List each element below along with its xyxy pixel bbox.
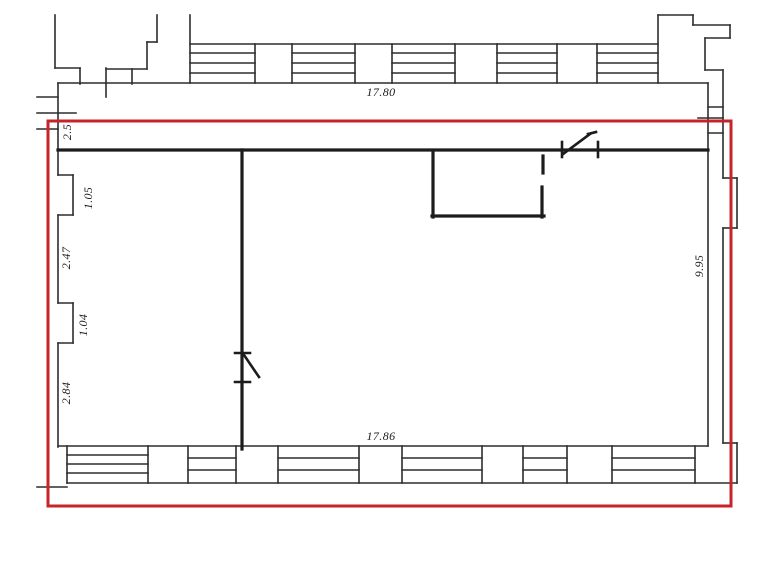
interior-walls xyxy=(58,150,708,449)
dim-height-right: 9.95 xyxy=(692,255,706,278)
door-swing-top-wall-segment xyxy=(588,132,596,134)
dim-left-mid: 2.47 xyxy=(59,246,73,269)
door-swing-partition xyxy=(235,353,259,382)
floor-plan-drawing: 17.8017.869.952.51.052.471.042.84 xyxy=(0,0,781,577)
bottom-window-band xyxy=(37,446,737,487)
exterior-walls xyxy=(58,83,708,447)
dim-left-lower: 2.84 xyxy=(59,382,73,405)
dim-width-bottom: 17.86 xyxy=(367,429,396,443)
top-window-band xyxy=(190,44,658,83)
dim-left-pier2: 1.04 xyxy=(76,314,90,337)
door-swing-partition-segment xyxy=(244,355,259,377)
floor-plan-page: 17.8017.869.952.51.052.471.042.84 xyxy=(0,0,781,577)
facade-top-left-outline xyxy=(55,15,190,97)
door-swing-top-wall xyxy=(562,132,598,157)
dim-width-top: 17.80 xyxy=(367,85,396,99)
facade-top-right-outline xyxy=(658,15,737,483)
red-selection-rect xyxy=(48,121,731,506)
dim-left-top: 2.5 xyxy=(60,124,74,140)
dim-left-pier1: 1.05 xyxy=(81,187,95,210)
